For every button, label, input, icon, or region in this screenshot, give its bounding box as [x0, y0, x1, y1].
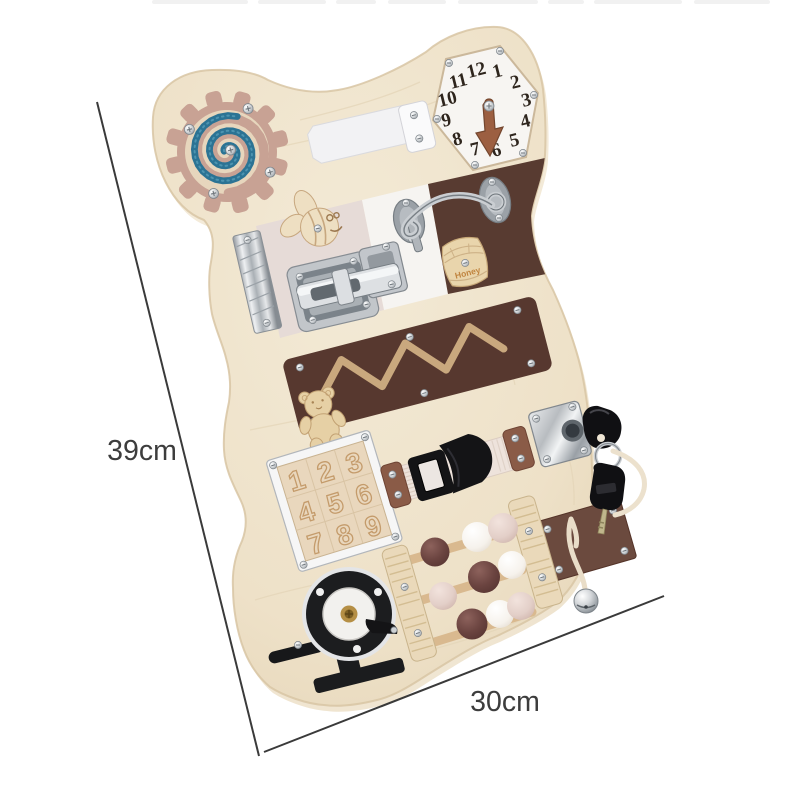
svg-text:30cm: 30cm [470, 686, 540, 718]
svg-text:39cm: 39cm [107, 435, 177, 467]
